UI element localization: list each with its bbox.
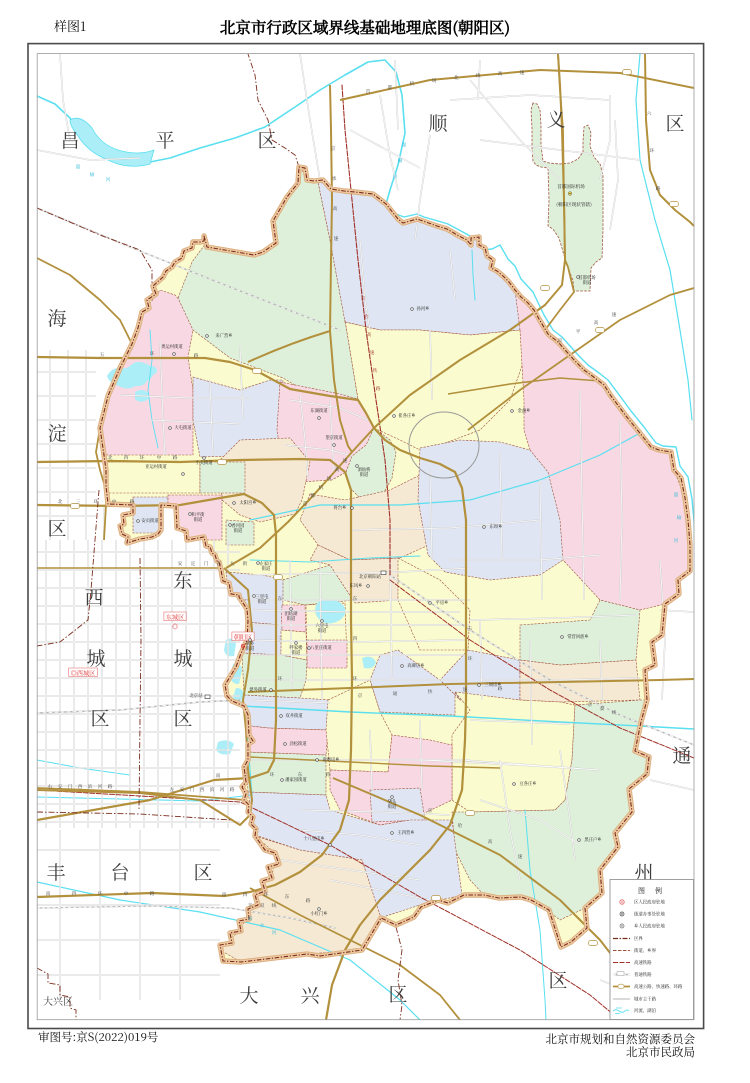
svg-text:高: 高 xyxy=(335,466,340,473)
svg-text:平: 平 xyxy=(155,126,174,153)
svg-text:安: 安 xyxy=(180,786,185,793)
svg-text:顺: 顺 xyxy=(428,109,448,136)
svg-text:路: 路 xyxy=(173,454,178,461)
svg-text:平: 平 xyxy=(576,328,581,335)
svg-text:崔各庄乡: 崔各庄乡 xyxy=(398,412,415,419)
svg-text:街道: 街道 xyxy=(194,516,203,523)
svg-text:街道: 街道 xyxy=(583,279,592,286)
svg-text:四: 四 xyxy=(72,890,77,897)
svg-text:黑庄户乡: 黑庄户乡 xyxy=(584,836,601,843)
svg-text:东: 东 xyxy=(285,893,290,900)
svg-text:城: 城 xyxy=(173,644,192,671)
svg-text:河: 河 xyxy=(674,537,679,544)
svg-text:三: 三 xyxy=(76,498,81,505)
svg-text:常营回族乡: 常营回族乡 xyxy=(567,633,588,640)
svg-text:例: 例 xyxy=(655,886,662,896)
svg-text:京: 京 xyxy=(558,337,563,344)
svg-text:路: 路 xyxy=(326,771,331,778)
svg-text:◎西城区: ◎西城区 xyxy=(71,668,96,677)
svg-text:安: 安 xyxy=(178,560,183,567)
svg-text:区: 区 xyxy=(548,966,567,993)
svg-text:线: 线 xyxy=(272,902,277,909)
svg-text:图: 图 xyxy=(638,886,645,896)
svg-text:门: 门 xyxy=(68,783,73,790)
svg-text:安贞街道: 安贞街道 xyxy=(141,517,159,524)
svg-text:平房乡: 平房乡 xyxy=(436,599,449,606)
svg-text:路: 路 xyxy=(498,685,503,692)
svg-text:哈: 哈 xyxy=(364,313,369,320)
svg-text:京: 京 xyxy=(588,701,593,708)
svg-text:首: 首 xyxy=(366,88,371,95)
svg-text:门: 门 xyxy=(204,560,209,567)
svg-text:北京朝阳站: 北京朝阳站 xyxy=(359,573,382,580)
svg-text:西: 西 xyxy=(84,583,103,610)
svg-text:奥运村街道: 奥运村街道 xyxy=(161,343,183,350)
svg-text:都: 都 xyxy=(311,492,316,499)
svg-text:京: 京 xyxy=(428,807,433,814)
svg-text:大兴区: 大兴区 xyxy=(43,993,73,1008)
svg-text:小红门乡: 小红门乡 xyxy=(310,910,327,917)
svg-text:温: 温 xyxy=(674,491,679,498)
svg-text:区: 区 xyxy=(665,109,684,136)
svg-text:东风乡: 东风乡 xyxy=(350,582,363,589)
svg-text:昌: 昌 xyxy=(60,126,79,153)
svg-text:潘家园街道: 潘家园街道 xyxy=(285,776,307,783)
svg-text:河: 河 xyxy=(106,176,111,183)
svg-text:区: 区 xyxy=(47,514,66,541)
svg-text:环: 环 xyxy=(264,891,269,898)
svg-text:望京街道: 望京街道 xyxy=(325,434,343,441)
svg-text:街道: 街道 xyxy=(360,471,369,478)
svg-text:街道办事处驻地: 街道办事处驻地 xyxy=(634,911,665,918)
svg-text:左: 左 xyxy=(170,786,175,793)
svg-text:门: 门 xyxy=(190,786,195,793)
svg-text:区: 区 xyxy=(90,704,109,731)
svg-text:滨: 滨 xyxy=(210,786,215,793)
svg-text:街道: 街道 xyxy=(388,803,397,810)
svg-text:样图1: 样图1 xyxy=(54,16,86,35)
svg-text:南: 南 xyxy=(46,890,51,897)
svg-text:高: 高 xyxy=(498,70,503,77)
svg-text:北: 北 xyxy=(108,454,113,461)
svg-text:凉: 凉 xyxy=(248,915,253,922)
svg-text:五: 五 xyxy=(468,625,473,632)
svg-text:五: 五 xyxy=(100,351,105,358)
svg-text:建外街道: 建外街道 xyxy=(249,686,267,693)
svg-text:水: 水 xyxy=(260,922,265,929)
svg-text:三: 三 xyxy=(243,772,248,779)
svg-text:定: 定 xyxy=(191,560,196,567)
svg-text:路: 路 xyxy=(108,783,113,790)
svg-text:义: 义 xyxy=(546,105,565,132)
svg-text:乡人民政府驻地: 乡人民政府驻地 xyxy=(634,923,665,930)
svg-text:区: 区 xyxy=(173,704,192,731)
svg-text:秦: 秦 xyxy=(600,705,605,712)
svg-text:区: 区 xyxy=(388,980,407,1007)
svg-text:场: 场 xyxy=(327,475,332,482)
svg-text:环: 环 xyxy=(353,675,358,682)
svg-text:路: 路 xyxy=(130,498,135,505)
svg-text:环: 环 xyxy=(650,147,655,154)
svg-text:街道: 街道 xyxy=(262,565,271,572)
svg-text:路: 路 xyxy=(194,352,199,359)
svg-text:榆: 榆 xyxy=(90,171,95,178)
svg-text:榆: 榆 xyxy=(677,514,682,521)
svg-text:双: 双 xyxy=(260,902,265,909)
svg-text:区: 区 xyxy=(193,858,212,885)
svg-text:河: 河 xyxy=(220,786,225,793)
svg-text:区人民政府驻地: 区人民政府驻地 xyxy=(634,899,665,906)
svg-text:铁: 铁 xyxy=(373,367,378,374)
svg-text:亚运村街道: 亚运村街道 xyxy=(145,463,167,470)
svg-text:承: 承 xyxy=(332,175,337,182)
svg-text:八里庄街道: 八里庄街道 xyxy=(310,644,332,651)
svg-text:场: 场 xyxy=(432,77,437,84)
svg-text:四: 四 xyxy=(124,454,129,461)
svg-text:◎: ◎ xyxy=(172,622,178,631)
svg-text:三: 三 xyxy=(278,635,283,642)
svg-text:街道: 街道 xyxy=(234,527,243,534)
svg-text:街道、乡界: 街道、乡界 xyxy=(634,947,657,954)
svg-text:审图号:京S(2022)019号: 审图号:京S(2022)019号 xyxy=(38,1029,159,1045)
svg-text:机: 机 xyxy=(410,80,415,87)
svg-text:温: 温 xyxy=(76,163,81,170)
svg-text:北京站: 北京站 xyxy=(189,692,203,699)
svg-text:速: 速 xyxy=(520,69,525,76)
svg-text:环: 环 xyxy=(94,498,99,505)
svg-text:台: 台 xyxy=(110,858,129,885)
svg-text:东: 东 xyxy=(173,566,192,593)
svg-text:右: 右 xyxy=(48,783,53,790)
svg-text:丰: 丰 xyxy=(46,858,65,885)
svg-text:王四营乡: 王四营乡 xyxy=(397,829,414,836)
svg-text:街道: 街道 xyxy=(287,615,296,622)
svg-text:环: 环 xyxy=(150,350,155,357)
svg-text:丰: 丰 xyxy=(248,902,253,909)
svg-text:速: 速 xyxy=(518,853,523,860)
svg-text:温: 温 xyxy=(402,141,407,148)
svg-text:东: 东 xyxy=(353,595,358,602)
svg-text:东: 东 xyxy=(217,560,222,567)
svg-text:哈: 哈 xyxy=(458,822,463,829)
svg-text:十八里店乡: 十八里店乡 xyxy=(303,835,324,842)
svg-text:速: 速 xyxy=(334,235,339,242)
svg-text:区界: 区界 xyxy=(634,935,643,942)
svg-text:环: 环 xyxy=(270,771,275,778)
svg-text:普通铁路: 普通铁路 xyxy=(634,971,652,978)
svg-text:机: 机 xyxy=(319,484,324,491)
svg-text:高: 高 xyxy=(594,319,599,326)
svg-text:东: 东 xyxy=(298,771,303,778)
svg-text:路: 路 xyxy=(230,786,235,793)
svg-text:街: 街 xyxy=(243,560,248,567)
svg-text:东城区: 东城区 xyxy=(166,612,185,621)
svg-text:速: 速 xyxy=(370,349,375,356)
svg-text:淀: 淀 xyxy=(47,419,66,446)
svg-text:高速公路、快速路、环路: 高速公路、快速路、环路 xyxy=(634,983,683,990)
svg-text:区: 区 xyxy=(257,126,276,153)
svg-text:孙河乡: 孙河乡 xyxy=(417,305,430,312)
svg-text:通: 通 xyxy=(672,741,691,768)
svg-text:城: 城 xyxy=(86,644,105,671)
svg-text:河: 河 xyxy=(272,929,277,936)
svg-text:快: 快 xyxy=(428,688,433,695)
svg-text:兴: 兴 xyxy=(300,981,320,1008)
svg-text:大屯街道: 大屯街道 xyxy=(174,424,192,431)
svg-text:海: 海 xyxy=(47,304,66,331)
svg-text:西: 西 xyxy=(200,786,205,793)
svg-text:北京市行政区域界线基础地理底图(朝阳区): 北京市行政区域界线基础地理底图(朝阳区) xyxy=(220,16,510,38)
svg-text:中: 中 xyxy=(124,890,129,897)
svg-text:路: 路 xyxy=(150,890,155,897)
svg-text:速: 速 xyxy=(463,686,468,693)
svg-text:速: 速 xyxy=(612,311,617,318)
svg-text:北京市民政局: 北京市民政局 xyxy=(626,1044,695,1060)
svg-text:首都国际机场: 首都国际机场 xyxy=(557,183,585,190)
svg-text:来广营乡: 来广营乡 xyxy=(215,332,232,339)
svg-text:四: 四 xyxy=(353,635,358,642)
svg-text:四: 四 xyxy=(243,891,248,898)
svg-text:路: 路 xyxy=(306,897,311,904)
svg-text:路: 路 xyxy=(656,185,661,192)
svg-text:劲松街道: 劲松街道 xyxy=(289,740,307,747)
svg-text:都: 都 xyxy=(388,84,393,91)
svg-text:环: 环 xyxy=(98,890,103,897)
svg-text:六: 六 xyxy=(647,110,652,117)
svg-text:速: 速 xyxy=(343,457,348,464)
svg-text:北: 北 xyxy=(58,498,63,505)
svg-text:线: 线 xyxy=(476,72,481,79)
svg-text:高速铁路: 高速铁路 xyxy=(634,959,652,966)
svg-text:小关街道: 小关街道 xyxy=(195,459,213,466)
svg-text:环: 环 xyxy=(140,454,145,461)
svg-text:(朝阳区现状管辖): (朝阳区现状管辖) xyxy=(556,201,592,208)
svg-text:滨: 滨 xyxy=(88,783,93,790)
svg-text:通: 通 xyxy=(393,690,398,697)
svg-text:城市主干路: 城市主干路 xyxy=(634,996,657,1003)
svg-text:安: 安 xyxy=(58,783,63,790)
svg-text:环: 环 xyxy=(278,675,283,682)
svg-text:高: 高 xyxy=(333,205,338,212)
svg-text:西: 西 xyxy=(78,783,83,790)
svg-text:环: 环 xyxy=(468,655,473,662)
svg-text:河: 河 xyxy=(98,783,103,790)
svg-text:京: 京 xyxy=(358,692,363,699)
svg-text:中: 中 xyxy=(112,498,117,505)
svg-text:中: 中 xyxy=(157,454,162,461)
svg-text:线: 线 xyxy=(612,709,617,716)
svg-text:高: 高 xyxy=(488,838,493,845)
svg-text:大: 大 xyxy=(239,981,258,1008)
svg-text:双井街道: 双井街道 xyxy=(285,712,303,719)
svg-text:东坝乡: 东坝乡 xyxy=(490,523,503,530)
svg-text:豆各庄乡: 豆各庄乡 xyxy=(519,780,536,787)
svg-text:路: 路 xyxy=(376,385,381,392)
svg-text:南: 南 xyxy=(216,772,221,779)
svg-text:高碑店乡: 高碑店乡 xyxy=(407,662,424,669)
svg-text:将台乡: 将台乡 xyxy=(334,504,347,511)
svg-text:高: 高 xyxy=(367,331,372,338)
svg-text:金盏乡: 金盏乡 xyxy=(518,407,531,414)
svg-text:京: 京 xyxy=(331,145,336,152)
svg-text:北: 北 xyxy=(454,74,459,81)
svg-text:街道: 街道 xyxy=(292,649,301,656)
svg-text:南磨房乡: 南磨房乡 xyxy=(322,756,339,763)
svg-text:东: 东 xyxy=(278,595,283,602)
svg-text:榆: 榆 xyxy=(398,157,403,164)
svg-text:河流、湖泊: 河流、湖泊 xyxy=(634,1007,657,1014)
svg-text:河: 河 xyxy=(393,173,398,180)
svg-text:街道: 街道 xyxy=(246,645,255,652)
svg-text:南: 南 xyxy=(222,891,227,898)
svg-text:东湖街道: 东湖街道 xyxy=(310,407,328,414)
svg-text:街道: 街道 xyxy=(318,627,327,634)
svg-text:大: 大 xyxy=(230,560,235,567)
svg-text:街道: 街道 xyxy=(258,598,267,605)
svg-text:京: 京 xyxy=(361,295,366,302)
svg-text:太阳宫乡: 太阳宫乡 xyxy=(239,499,256,506)
svg-text:首: 首 xyxy=(303,500,308,507)
